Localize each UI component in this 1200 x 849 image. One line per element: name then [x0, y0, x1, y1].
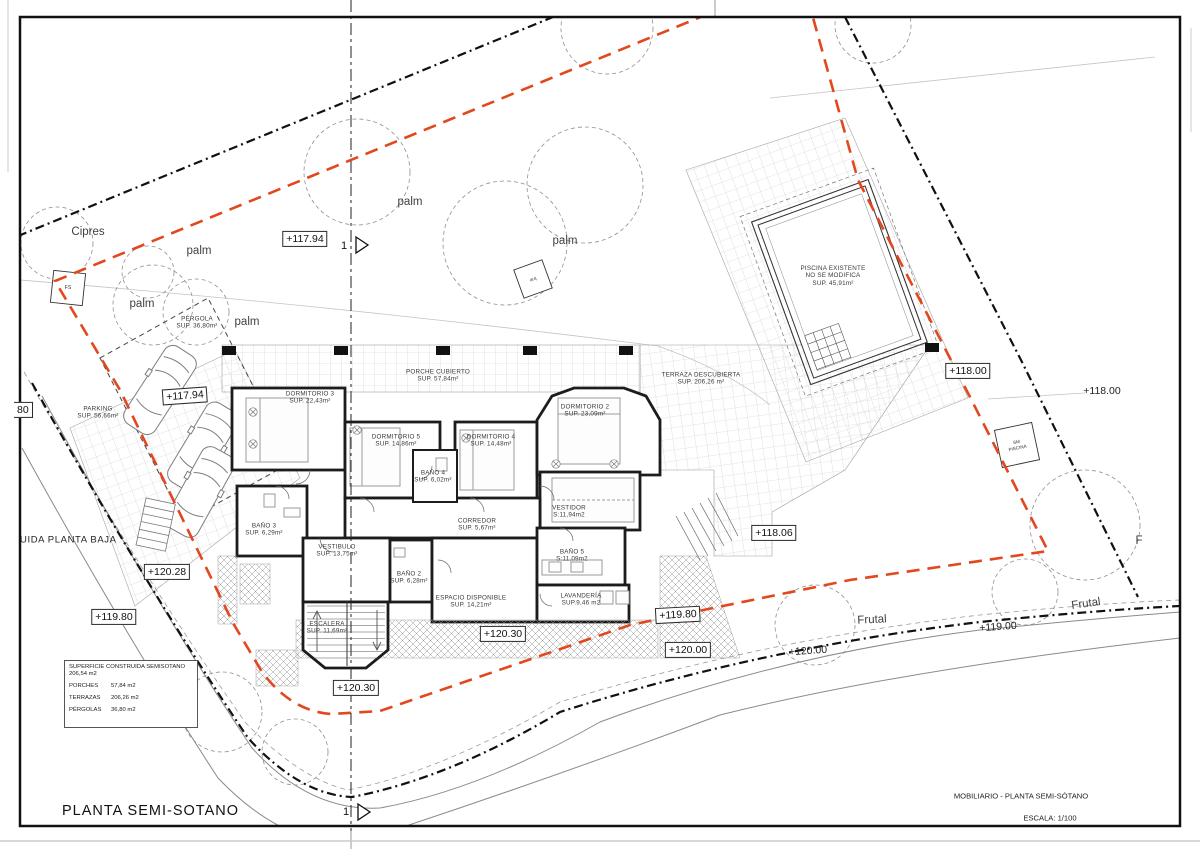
elevation-marker: +118.06 [751, 525, 796, 541]
legend-row-terrazas: TERRAZAS206,26 m2 [69, 695, 193, 702]
room-label-banio3: BAÑO 3SUP. 6,29m² [245, 523, 282, 538]
clipped-left-text: UIDA PLANTA BAJA [20, 535, 117, 546]
tree-label-palm: palm [235, 316, 260, 328]
room-label-dormitorio2: DORMITORIO 2SUP. 23,09m² [561, 404, 609, 419]
room-label-parking: PARKINGSUP. 56,66m² [77, 406, 118, 421]
legend-box: SUPERFICIE CONSTRUIDA SEMISOTANO 206,54 … [64, 660, 198, 728]
sheet-title: PLANTA SEMI-SOTANO [62, 803, 239, 819]
elevation-marker: +120.28 [144, 564, 190, 580]
section-number-bottom: 1 [343, 806, 349, 818]
washer [600, 591, 613, 604]
legend-line: 206,54 m2 [69, 671, 193, 678]
section-number-top: 1 [341, 240, 347, 252]
section-triangle-bottom [358, 804, 370, 820]
room-label-banio4: BAÑO 4SUP. 6,02m² [414, 470, 451, 485]
legend-row-porches: PORCHES57,84 m2 [69, 683, 193, 690]
legend-row-pergolas: PÉRGOLAS36,80 m2 [69, 707, 193, 714]
room-label-dormitorio3: DORMITORIO 3SUP. 22,43m² [286, 391, 334, 406]
elevation-marker: +120.30 [480, 626, 526, 642]
tree-label-palm: palm [398, 196, 423, 208]
pool-label: PISCINA EXISTENTENO SE MODIFICASUP. 45,9… [801, 265, 866, 287]
elevation-marker: +119.80 [91, 609, 136, 625]
elevation-marker: +120.30 [333, 680, 379, 696]
room-label-porche: PORCHE CUBIERTOSUP. 57,84m² [406, 369, 470, 384]
room-label-banio2: BAÑO 2SUP. 6,28m² [390, 571, 427, 586]
room-label-terraza: TERRAZA DESCUBIERTASUP. 206,26 m² [662, 372, 741, 387]
footer-title: MOBILIARIO - PLANTA SEMI-SÓTANO [954, 792, 1088, 801]
footer-scale: ESCALA: 1/100 [1023, 814, 1076, 823]
room-label-corredor: CORREDORSUP. 5,67m² [458, 518, 496, 533]
elevation-marker: +117.94 [282, 231, 327, 247]
elevation-text: +118.00 [1083, 385, 1120, 397]
tree-label-frutal-clipped: F [1135, 535, 1142, 547]
legend-line: SUPERFICIE CONSTRUIDA SEMISOTANO [69, 664, 193, 671]
room-label-escalera: ESCALERASUP. 11,69m² [307, 621, 348, 636]
elevation-marker: +117.94 [162, 386, 208, 405]
room-label-espacio: ESPACIO DISPONIBLESUP. 14,21m² [436, 595, 507, 610]
room-label-lavanderia: LAVANDERÍASUP.9,46 m2 [561, 593, 602, 608]
tree-label-frutal: Frutal [857, 613, 887, 627]
section-triangle-top [356, 237, 368, 253]
tree-label-palm: palm [187, 245, 212, 257]
elevation-marker: +119.80 [655, 606, 701, 625]
dryer [616, 591, 629, 604]
room-label-dormitorio4: DORMITORIO 4SUP. 14,48m² [467, 434, 515, 449]
room-label-vestidor: VESTIDORS:11,94m2 [552, 505, 586, 520]
bed-dormitorio3 [246, 398, 308, 462]
room-label-dormitorio5: DORMITORIO 5SUP. 14,86m² [372, 434, 420, 449]
tree-label-palm: palm [130, 298, 155, 310]
tree-label-cipres: Cipres [71, 226, 104, 238]
fs-marker-label: FS [65, 285, 72, 291]
elevation-marker-clipped: 80 [14, 402, 33, 418]
room-label-vestibulo: VESTIBULOSUP. 13,75m² [316, 544, 357, 559]
tree-label-palm: palm [553, 235, 578, 247]
room-label-banio5: BAÑO 5S:11,09m2 [556, 549, 588, 564]
room-corredor [345, 498, 540, 538]
room-label-pergola: PÉRGOLASUP. 36,80m² [176, 316, 217, 331]
elevation-marker: +118.00 [945, 363, 990, 379]
elevation-marker: +120.00 [665, 642, 711, 658]
floor-plan-sheet: +117.94 +117.94 +118.00 +118.06 +120.28 … [0, 0, 1200, 849]
